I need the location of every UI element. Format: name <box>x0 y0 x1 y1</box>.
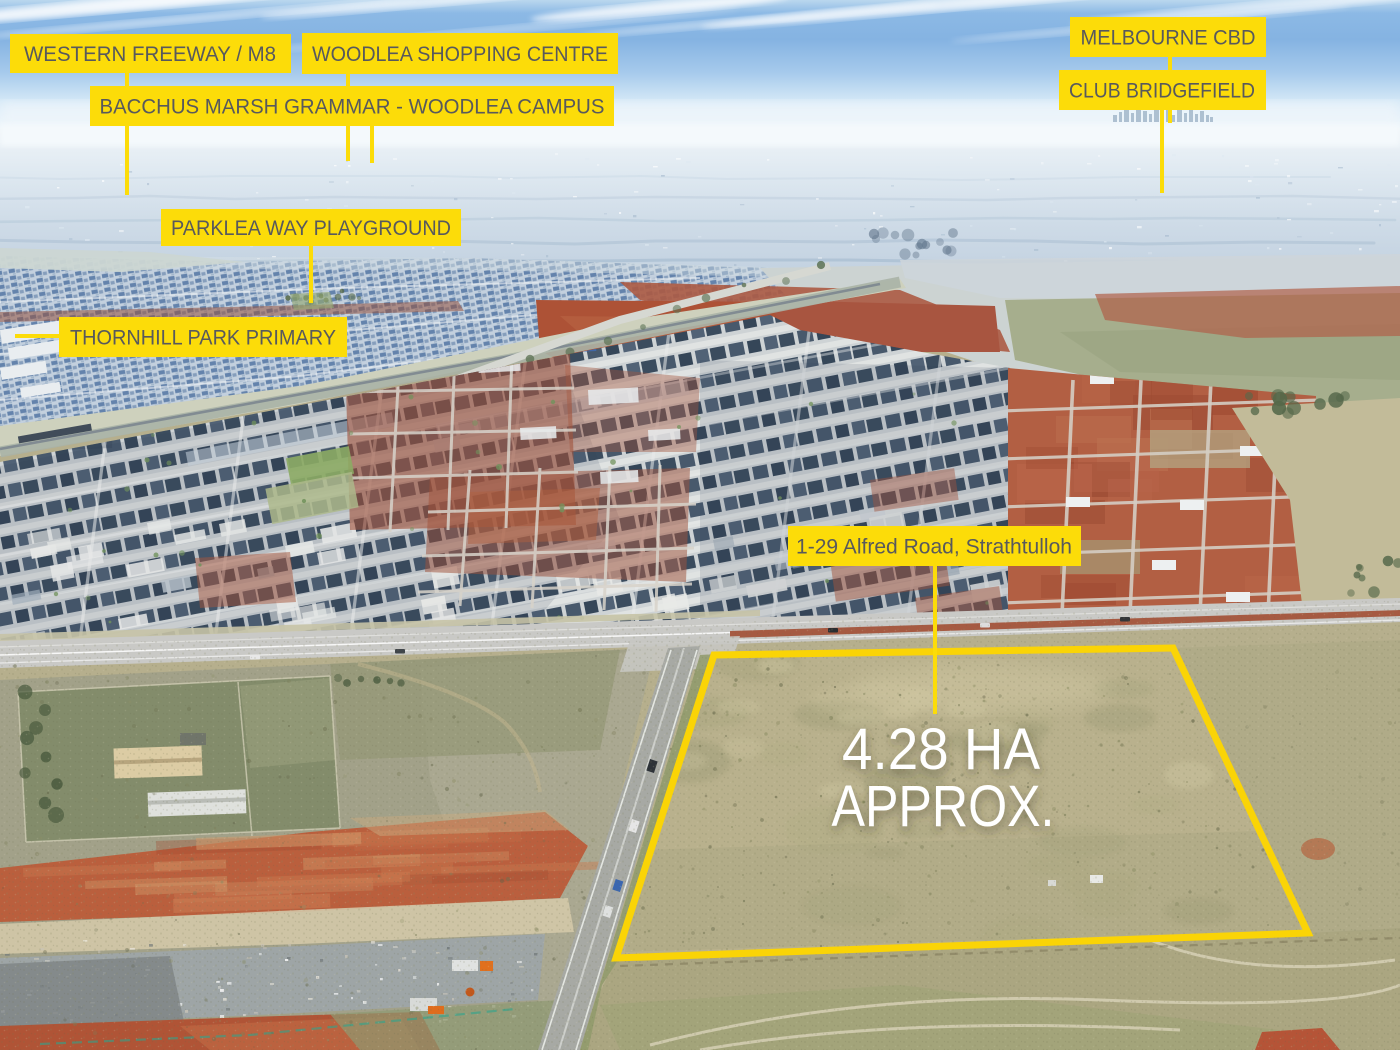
svg-text:WESTERN FREEWAY / M8: WESTERN FREEWAY / M8 <box>24 42 276 66</box>
svg-text:4.28 HA: 4.28 HA <box>842 717 1040 782</box>
svg-text:BACCHUS MARSH GRAMMAR - WOODLE: BACCHUS MARSH GRAMMAR - WOODLEA CAMPUS <box>100 94 605 118</box>
svg-text:1-29 Alfred Road, Strathtulloh: 1-29 Alfred Road, Strathtulloh <box>796 534 1072 558</box>
svg-text:THORNHILL PARK PRIMARY: THORNHILL PARK PRIMARY <box>70 325 336 349</box>
svg-text:PARKLEA WAY PLAYGROUND: PARKLEA WAY PLAYGROUND <box>171 216 451 240</box>
svg-text:CLUB BRIDGEFIELD: CLUB BRIDGEFIELD <box>1069 78 1255 102</box>
svg-text:WOODLEA SHOPPING CENTRE: WOODLEA SHOPPING CENTRE <box>312 42 608 66</box>
svg-text:MELBOURNE CBD: MELBOURNE CBD <box>1081 25 1256 49</box>
svg-text:APPROX.: APPROX. <box>832 774 1055 839</box>
